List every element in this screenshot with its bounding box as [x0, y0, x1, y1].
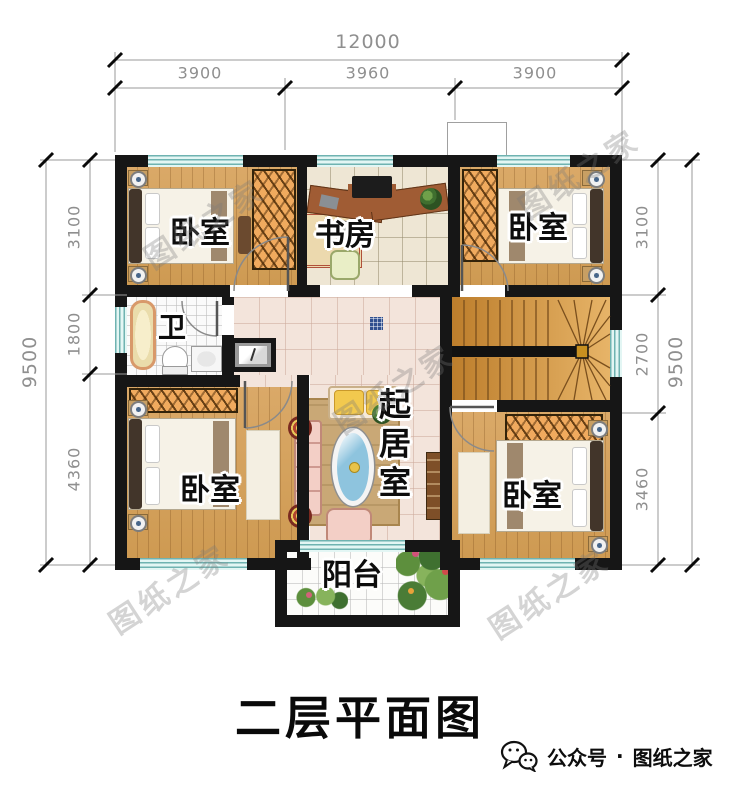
bedside-lamp	[591, 421, 608, 438]
toilet-tank	[162, 366, 188, 375]
balcony-wall	[275, 615, 460, 627]
headboard	[129, 189, 142, 263]
pillow	[572, 447, 587, 485]
bedside-mat	[246, 430, 280, 520]
wall	[222, 335, 234, 375]
washer-cabinet	[230, 338, 276, 372]
pouf	[330, 250, 360, 280]
monitor	[352, 176, 392, 198]
doorway-floor	[240, 375, 297, 387]
page-title: 二层平面图	[235, 682, 485, 748]
wardrobe-top-right	[462, 169, 498, 262]
dim-left-seg-2: 4360	[65, 447, 84, 492]
bedside-lamp	[588, 267, 605, 284]
bedside-lamp	[130, 171, 147, 188]
wall	[115, 155, 127, 570]
footer-brand-name: 图纸之家	[633, 742, 713, 771]
dim-left-seg-1: 1800	[65, 312, 84, 357]
pillow	[572, 227, 587, 259]
footer-separator: ·	[616, 744, 624, 768]
room-label-balcony: 阳台	[322, 550, 382, 594]
window	[610, 330, 622, 377]
room-label-bedroom-br: 卧室	[502, 471, 562, 515]
wall	[412, 285, 460, 297]
dim-top-total: 12000	[335, 31, 400, 53]
headboard	[590, 189, 603, 263]
bedside-lamp	[130, 401, 147, 418]
wall	[405, 540, 452, 552]
dim-left-total: 9500	[19, 336, 41, 388]
bedside-mat	[458, 452, 490, 534]
footer-channel: 公众号	[547, 742, 607, 771]
wall	[297, 167, 307, 285]
wall	[222, 297, 234, 305]
balcony-wall	[275, 540, 287, 627]
balcony-wall	[448, 540, 460, 627]
window	[115, 307, 127, 353]
wechat-icon	[500, 740, 538, 772]
pillow	[145, 467, 160, 505]
dim-top-seg-1: 3960	[346, 64, 391, 83]
wall	[440, 297, 452, 558]
headboard	[129, 419, 142, 509]
wall	[448, 167, 460, 285]
dim-right-seg-1: 2700	[633, 332, 652, 377]
wall	[287, 540, 300, 552]
bathtub	[130, 300, 156, 370]
flower	[306, 592, 312, 598]
wall	[115, 375, 240, 387]
bedside-lamp	[130, 267, 147, 284]
dim-top-seg-2: 3900	[513, 64, 558, 83]
dim-right-seg-0: 3100	[633, 205, 652, 250]
vanity-sink	[191, 346, 222, 372]
dim-left-seg-0: 3100	[65, 205, 84, 250]
dim-right-seg-2: 3460	[633, 467, 652, 512]
wall	[127, 285, 230, 297]
room-label-bedroom-bl: 卧室	[180, 465, 240, 509]
wall	[505, 285, 610, 297]
floor-plan-page: 卧室 书房 卧室 卫 起居室 卧室 卧室 阳台 12000 3900 3960 …	[0, 0, 750, 785]
dim-right-total: 9500	[665, 336, 687, 388]
wall	[288, 285, 320, 297]
room-label-bathroom: 卫	[158, 306, 186, 346]
pillow	[145, 425, 160, 463]
wall	[497, 400, 610, 412]
dim-top-seg-0: 3900	[178, 64, 223, 83]
pillow	[572, 489, 587, 527]
room-label-study: 书房	[315, 210, 375, 254]
blue-mat	[370, 317, 383, 330]
footer-brand: 公众号 · 图纸之家	[500, 740, 713, 772]
bedside-lamp	[130, 515, 147, 532]
desk-plant	[420, 188, 442, 210]
table-decor	[349, 462, 360, 473]
staircase-floor	[452, 297, 610, 400]
window	[148, 155, 243, 167]
pillow	[145, 193, 160, 225]
flower	[408, 588, 414, 594]
wall	[297, 375, 309, 558]
headboard	[590, 441, 603, 531]
window	[317, 155, 393, 167]
